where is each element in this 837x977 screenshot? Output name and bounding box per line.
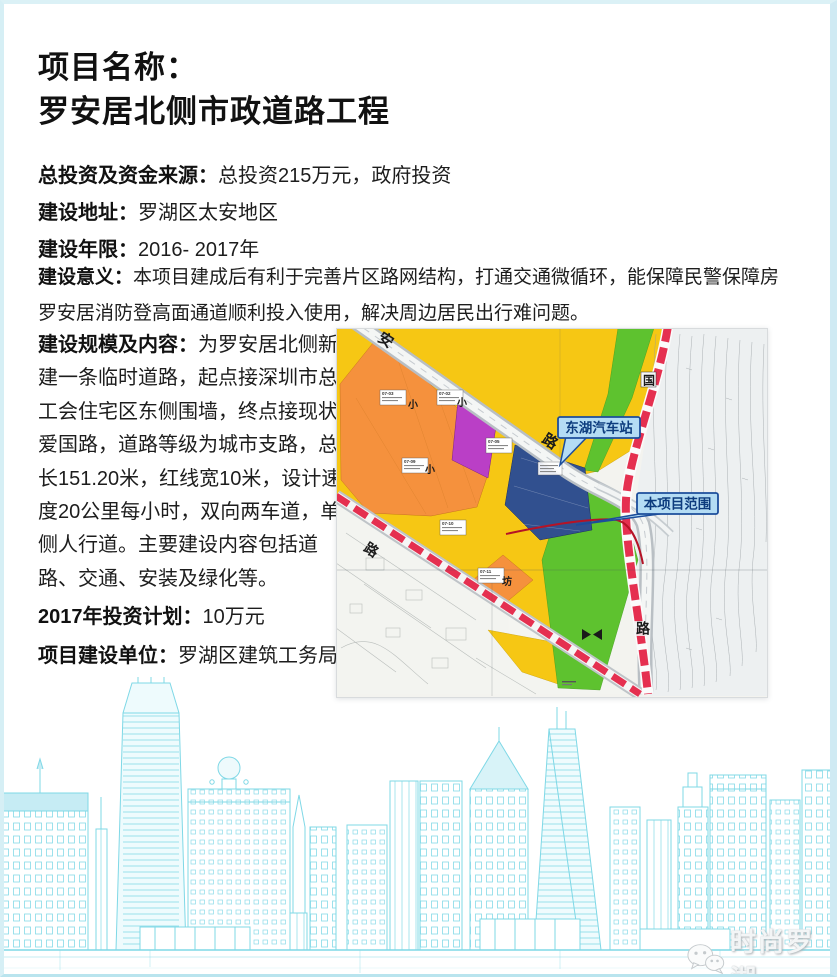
svg-text:小: 小 (407, 398, 418, 411)
svg-text:小: 小 (424, 463, 435, 476)
field-plan2017: 2017年投资计划：10万元 (38, 601, 344, 634)
field-address-label: 建设地址： (38, 202, 138, 224)
field-builder-label: 项目建设单位： (38, 645, 178, 667)
planning-map: 07-03 07-02 07-05 07-09 07-10 07-11 安 路 … (336, 328, 768, 698)
field-significance-label: 建设意义： (38, 267, 133, 288)
page-title: 项目名称： 罗安居北侧市政道路工程 (38, 46, 390, 134)
svg-text:小: 小 (456, 396, 467, 409)
field-builder-value: 罗湖区建筑工务局 (178, 645, 338, 667)
planning-map-image: 07-03 07-02 07-05 07-09 07-10 07-11 安 路 … (336, 328, 768, 698)
road-label-lu-vertical: 路 (636, 621, 651, 637)
field-years-value: 2016- 2017年 (138, 239, 259, 261)
field-builder: 项目建设单位：罗湖区建筑工务局 (38, 640, 344, 673)
field-years: 建设年限：2016- 2017年 (38, 233, 259, 262)
watermark: 时尚罗湖 (686, 922, 837, 977)
field-address: 建设地址：罗湖区太安地区 (38, 196, 278, 225)
field-address-value: 罗湖区太安地区 (138, 202, 278, 224)
field-investment-value: 总投资215万元，政府投资 (218, 165, 451, 187)
svg-text:07-10: 07-10 (442, 521, 454, 526)
field-plan2017-value: 10万元 (203, 606, 265, 628)
svg-text:07-05: 07-05 (488, 439, 500, 444)
wechat-icon (686, 941, 726, 977)
svg-text:07-11: 07-11 (480, 569, 492, 574)
field-scale-value: 为罗安居北侧新建一条临时道路，起点接深圳市总工会住宅区东侧围墙，终点接现状爱国路… (38, 334, 341, 590)
field-plan2017-label: 2017年投资计划： (38, 606, 203, 628)
callout-bus-station-text: 东湖汽车站 (565, 420, 633, 436)
field-investment-label: 总投资及资金来源： (38, 165, 218, 187)
title-line-2: 罗安居北侧市政道路工程 (38, 90, 390, 134)
field-years-label: 建设年限： (38, 239, 138, 261)
poster-page: 项目名称： 罗安居北侧市政道路工程 总投资及资金来源：总投资215万元，政府投资… (0, 0, 837, 977)
field-significance: 建设意义：本项目建成后有利于完善片区路网结构，打通交通微循环，能保障民警保障房罗… (38, 260, 790, 332)
callout-project-scope-text: 本项目范围 (644, 496, 712, 512)
road-label-guo: 国 (643, 374, 655, 388)
field-investment: 总投资及资金来源：总投资215万元，政府投资 (38, 159, 451, 188)
svg-text:坊: 坊 (502, 575, 512, 588)
title-line-1: 项目名称： (38, 46, 390, 90)
field-scale: 建设规模及内容：为罗安居北侧新建一条临时道路，起点接深圳市总工会住宅区东侧围墙，… (38, 329, 344, 596)
svg-text:07-03: 07-03 (382, 391, 394, 396)
svg-text:07-09: 07-09 (404, 459, 416, 464)
left-column: 建设规模及内容：为罗安居北侧新建一条临时道路，起点接深圳市总工会住宅区东侧围墙，… (38, 329, 344, 673)
field-scale-label: 建设规模及内容： (38, 334, 198, 356)
svg-text:07-02: 07-02 (439, 391, 451, 396)
field-significance-value: 本项目建成后有利于完善片区路网结构，打通交通微循环，能保障民警保障房罗安居消防登… (38, 267, 779, 324)
watermark-text: 时尚罗湖 (730, 922, 837, 977)
